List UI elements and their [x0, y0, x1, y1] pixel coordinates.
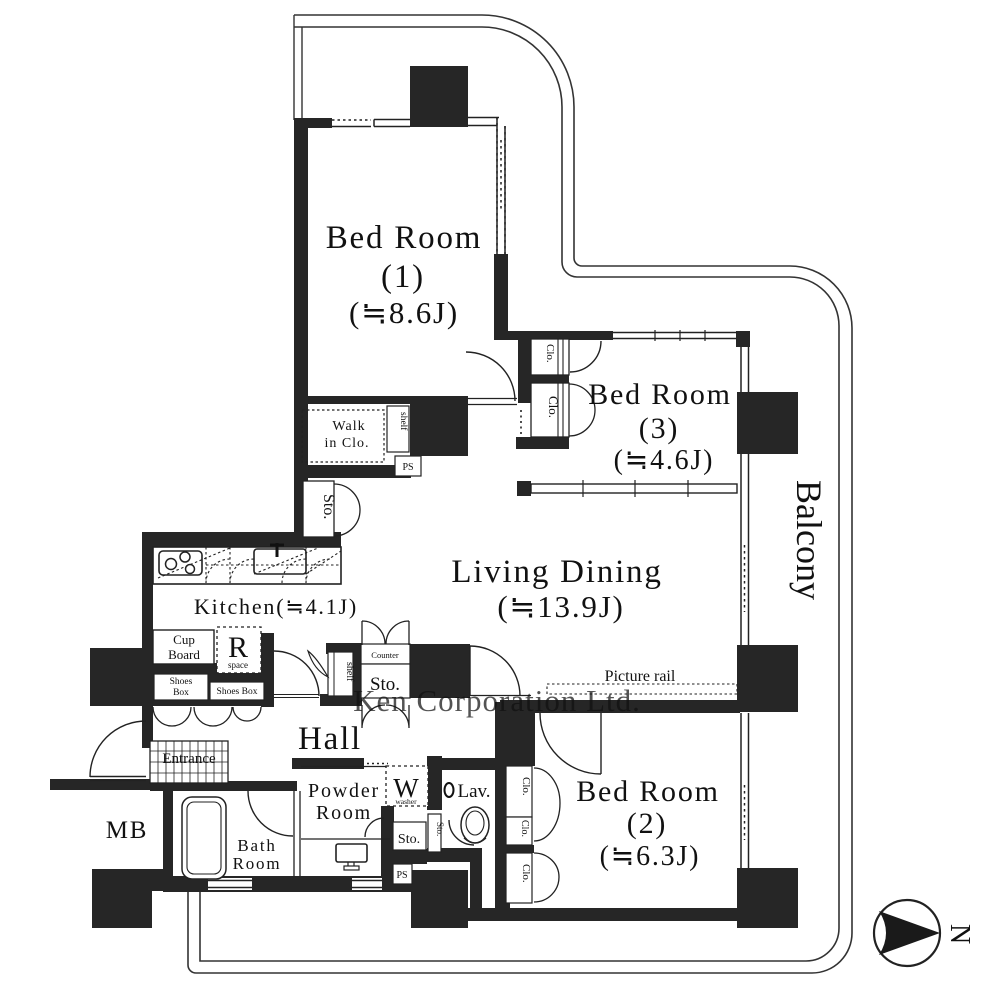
svg-text:Clo.: Clo. — [546, 396, 561, 418]
svg-text:(≒8.6J): (≒8.6J) — [349, 295, 459, 330]
svg-text:Box: Box — [173, 688, 189, 698]
svg-text:space: space — [228, 660, 248, 670]
svg-text:Walk: Walk — [332, 419, 365, 434]
svg-text:(3): (3) — [639, 412, 679, 445]
svg-text:Clo.: Clo. — [520, 777, 532, 796]
svg-text:Room: Room — [316, 802, 372, 824]
svg-text:(≒6.3J): (≒6.3J) — [600, 841, 701, 872]
svg-text:N: N — [944, 924, 975, 944]
svg-text:Sto.: Sto. — [435, 822, 445, 836]
svg-text:(2): (2) — [627, 807, 667, 840]
svg-text:Sto.: Sto. — [398, 832, 420, 847]
svg-text:Clo.: Clo. — [544, 344, 556, 363]
svg-text:Hall: Hall — [298, 721, 362, 757]
svg-text:Powder: Powder — [308, 780, 380, 802]
svg-text:shelf: shelf — [344, 662, 355, 682]
svg-text:(≒4.6J): (≒4.6J) — [614, 445, 715, 476]
svg-text:Cup: Cup — [173, 632, 195, 647]
svg-text:Room: Room — [233, 854, 282, 873]
svg-text:Bed Room: Bed Room — [326, 220, 483, 256]
svg-text:Entrance: Entrance — [162, 751, 216, 767]
svg-text:Balcony: Balcony — [789, 480, 829, 600]
svg-text:Sto.: Sto. — [320, 494, 337, 519]
svg-text:Bed Room: Bed Room — [576, 775, 720, 808]
svg-text:Living Dining: Living Dining — [451, 554, 662, 590]
svg-text:MB: MB — [106, 817, 149, 844]
svg-text:Clo.: Clo. — [519, 820, 530, 837]
svg-text:Kitchen(≒4.1J): Kitchen(≒4.1J) — [194, 594, 358, 619]
svg-text:Clo.: Clo. — [520, 864, 532, 883]
svg-text:(1): (1) — [381, 259, 425, 295]
svg-text:PS: PS — [396, 870, 407, 881]
svg-text:Bath: Bath — [237, 836, 276, 855]
svg-text:(≒13.9J): (≒13.9J) — [497, 589, 624, 624]
svg-text:in Clo.: in Clo. — [324, 436, 369, 451]
svg-text:Bed Room: Bed Room — [588, 378, 732, 411]
svg-text:Shoes Box: Shoes Box — [217, 687, 258, 697]
svg-text:Ken Corporation Ltd.: Ken Corporation Ltd. — [353, 683, 641, 718]
svg-text:Counter: Counter — [371, 650, 399, 660]
svg-text:PS: PS — [402, 462, 413, 473]
svg-text:Lav.: Lav. — [457, 781, 490, 802]
svg-text:Shoes: Shoes — [170, 677, 193, 687]
svg-text:Board: Board — [168, 647, 200, 662]
svg-text:shelf: shelf — [398, 412, 409, 431]
svg-text:washer: washer — [395, 797, 417, 806]
